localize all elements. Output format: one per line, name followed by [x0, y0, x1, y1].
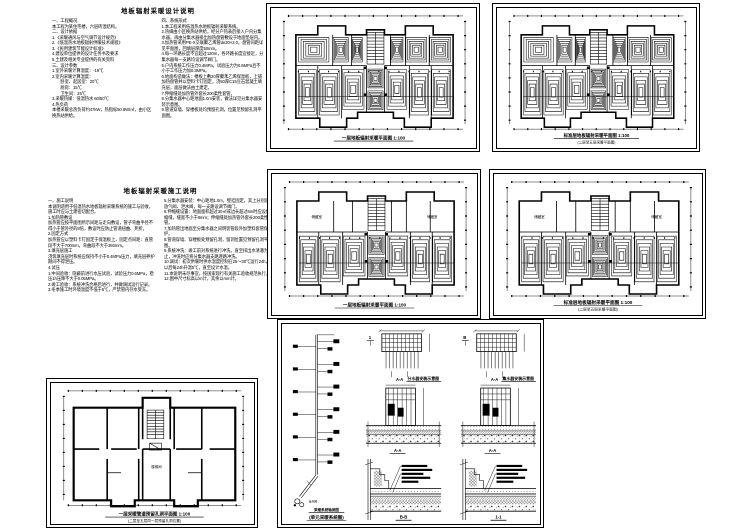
- cut-label-1: 1: [368, 334, 371, 339]
- floor-plan-drawing: 储藏室 储藏室 一层地板辐射采暖平面图 1:100: [273, 175, 476, 314]
- plan-caption: 一层采暖管道预留孔洞平面图 1:100: [118, 510, 190, 517]
- panel-details: 接外网 采暖系统轴测图 (单元采暖系统图) A-A: [277, 319, 544, 528]
- detail-column-supply: A-A 1 分水器安装示意图: [365, 329, 441, 520]
- plan-caption: 标准层地板辐射采暖平面图 1:100: [562, 132, 629, 139]
- riser-caption: 采暖系统轴测图: [313, 507, 339, 512]
- panel-frame: 标准层地板辐射采暖平面图 1:100 (二层至五层采暖平面图): [496, 7, 697, 149]
- section-mark-aa: A-A: [393, 448, 400, 453]
- floor-plan-drawing: 一层地板辐射采暖平面图 1:100: [272, 9, 475, 147]
- panel-plan-mid-right: 储藏室 储藏室 标准层地板辐射采暖平面图 1:100 (二层至五层采暖平面图): [489, 169, 706, 319]
- detail-column-return: A-A B 集水器安装示意图: [459, 329, 535, 520]
- riser-subcaption: (单元采暖系统图): [309, 514, 344, 521]
- riser-diagram: 接外网 采暖系统轴测图 (单元采暖系统图): [292, 334, 345, 520]
- design-notes-column-right: 四、系统形式 1.本工程采用低温热水地板辐射采暖系统。 2.热媒由小区换热站供给…: [162, 18, 265, 118]
- room-label-right: 储藏室: [426, 213, 437, 218]
- annotation-text-block: [401, 464, 432, 482]
- floor-plan-drawing: 储藏室 储藏室 标准层地板辐射采暖平面图 1:100 (二层至五层采暖平面图): [495, 175, 701, 314]
- panel-frame: 接外网 采暖系统轴测图 (单元采暖系统图) A-A: [281, 323, 541, 525]
- riser-note: 接外网: [308, 499, 317, 503]
- supply-manifold-title: 分水器安装示意图: [407, 376, 439, 381]
- section-mark-bb: B-B: [399, 514, 407, 519]
- stair-label: 楼梯间: [151, 463, 162, 468]
- plan-caption: 一层地板辐射采暖平面图 1:100: [342, 301, 406, 308]
- construction-notes-column-left: 一、施工说明 本说明适用于低温热水地板辐射采暖系统的施工与验收，施工时应与土建密…: [48, 198, 157, 293]
- room-label-left: 储藏室: [534, 214, 545, 219]
- construction-notes-title: 地板辐射采暖施工说明: [48, 186, 273, 195]
- panel-plan-top-mid: 一层地板辐射采暖平面图 1:100: [266, 3, 480, 152]
- panel-frame: 储藏室 储藏室 一层地板辐射采暖平面图 1:100: [271, 173, 478, 316]
- plan-caption: 一层地板辐射采暖平面图 1:100: [341, 134, 405, 141]
- section-mark-aa: A-A: [490, 377, 497, 382]
- floor-plan-drawing: 标准层地板辐射采暖平面图 1:100 (二层至五层采暖平面图): [498, 9, 695, 147]
- drawing-sheet: 地板辐射采暖设计说明 一、工程概况 本工程为某住宅楼，六层砖混结构。 二、设计依…: [0, 0, 749, 530]
- panel-plan-mid-center: 储藏室 储藏室 一层地板辐射采暖平面图 1:100: [267, 169, 481, 319]
- details-drawing: 接外网 采暖系统轴测图 (单元采暖系统图) A-A: [283, 325, 539, 523]
- construction-notes-block: 地板辐射采暖施工说明 一、施工说明 本说明适用于低温热水地板辐射采暖系统的施工与…: [48, 186, 273, 356]
- section-mark-11: 1-1: [495, 514, 502, 519]
- cut-label-b: B: [463, 334, 466, 339]
- plan-subcaption: (二层至五层采暖平面图): [578, 306, 618, 311]
- hole-plan-drawing: 楼梯间 一层采暖管道预留孔洞平面图 1:100 (二层至五层同一层预留孔洞位置): [52, 384, 253, 523]
- design-notes-column-left: 一、工程概况 本工程为某住宅楼，六层砖混结构。 二、设计依据 1.《采暖通风与空…: [52, 18, 155, 118]
- return-manifold-title: 集水器安装示意图: [501, 376, 534, 381]
- annotation-text-block: [496, 464, 527, 482]
- room-label-left: 储藏室: [311, 213, 322, 218]
- plan-subcaption: (二层至五层同一层预留孔洞位置): [127, 518, 180, 523]
- panel-frame: 一层地板辐射采暖平面图 1:100: [270, 7, 477, 149]
- design-notes-block: 地板辐射采暖设计说明 一、工程概况 本工程为某住宅楼，六层砖混结构。 二、设计依…: [52, 6, 264, 154]
- plan-subcaption: (二层至五层采暖平面图): [577, 139, 615, 144]
- design-notes-title: 地板辐射采暖设计说明: [52, 6, 264, 15]
- construction-notes-column-right: 5.分集水器安装：中心距地1.0m，壁挂固定，其上分别设放气阀、泄水阀，每一支路…: [164, 198, 273, 293]
- room-label-right: 储藏室: [651, 214, 662, 219]
- panel-plan-top-right: 标准层地板辐射采暖平面图 1:100 (二层至五层采暖平面图): [492, 3, 700, 152]
- panel-plan-bottom-left: 楼梯间 一层采暖管道预留孔洞平面图 1:100 (二层至五层同一层预留孔洞位置): [46, 378, 258, 528]
- section-mark-aa: A-A: [488, 448, 495, 453]
- section-mark-aa: A-A: [395, 377, 402, 382]
- panel-frame: 储藏室 储藏室 标准层地板辐射采暖平面图 1:100 (二层至五层采暖平面图): [493, 173, 703, 316]
- plan-caption: 标准层地板辐射采暖平面图 1:100: [562, 299, 632, 306]
- panel-frame: 楼梯间 一层采暖管道预留孔洞平面图 1:100 (二层至五层同一层预留孔洞位置): [50, 382, 255, 525]
